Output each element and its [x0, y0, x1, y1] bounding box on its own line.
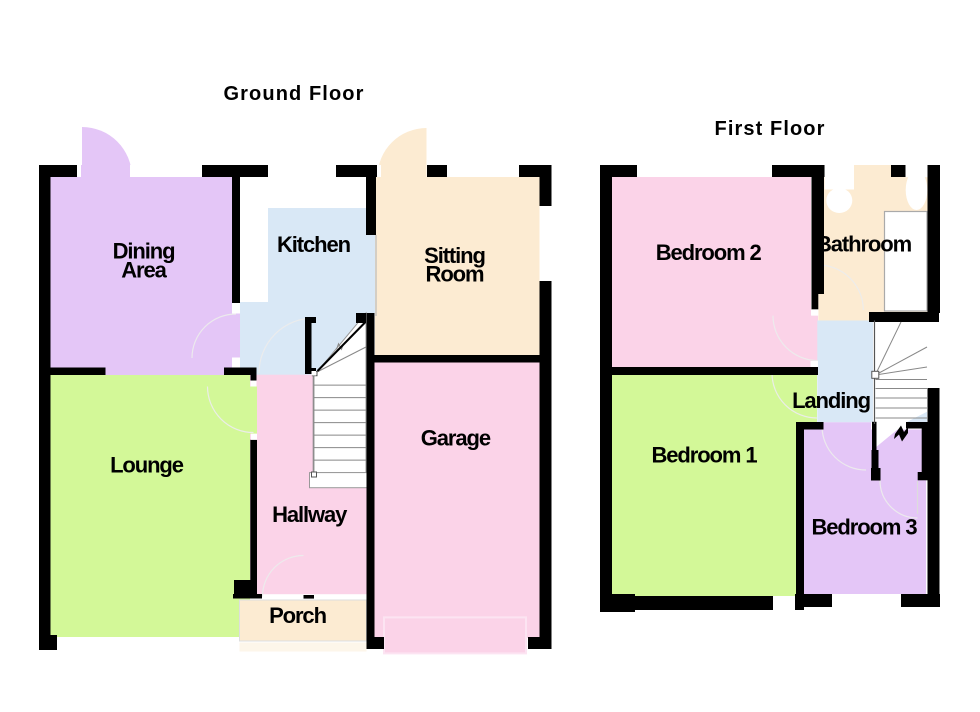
svg-text:Bathroom: Bathroom — [816, 232, 912, 257]
svg-text:Hallway: Hallway — [272, 502, 348, 527]
svg-text:Kitchen: Kitchen — [277, 232, 351, 257]
svg-text:Room: Room — [426, 262, 484, 287]
svg-text:Area: Area — [121, 257, 167, 282]
svg-text:Bedroom 2: Bedroom 2 — [656, 240, 762, 265]
svg-text:First Floor: First Floor — [715, 118, 826, 140]
svg-text:Bedroom 1: Bedroom 1 — [651, 443, 757, 468]
svg-text:Lounge: Lounge — [110, 453, 184, 478]
svg-text:Landing: Landing — [792, 388, 870, 413]
svg-text:Ground Floor: Ground Floor — [224, 83, 365, 105]
svg-text:Garage: Garage — [421, 426, 491, 451]
svg-text:Porch: Porch — [269, 603, 327, 628]
svg-text:Bedroom 3: Bedroom 3 — [811, 515, 917, 540]
